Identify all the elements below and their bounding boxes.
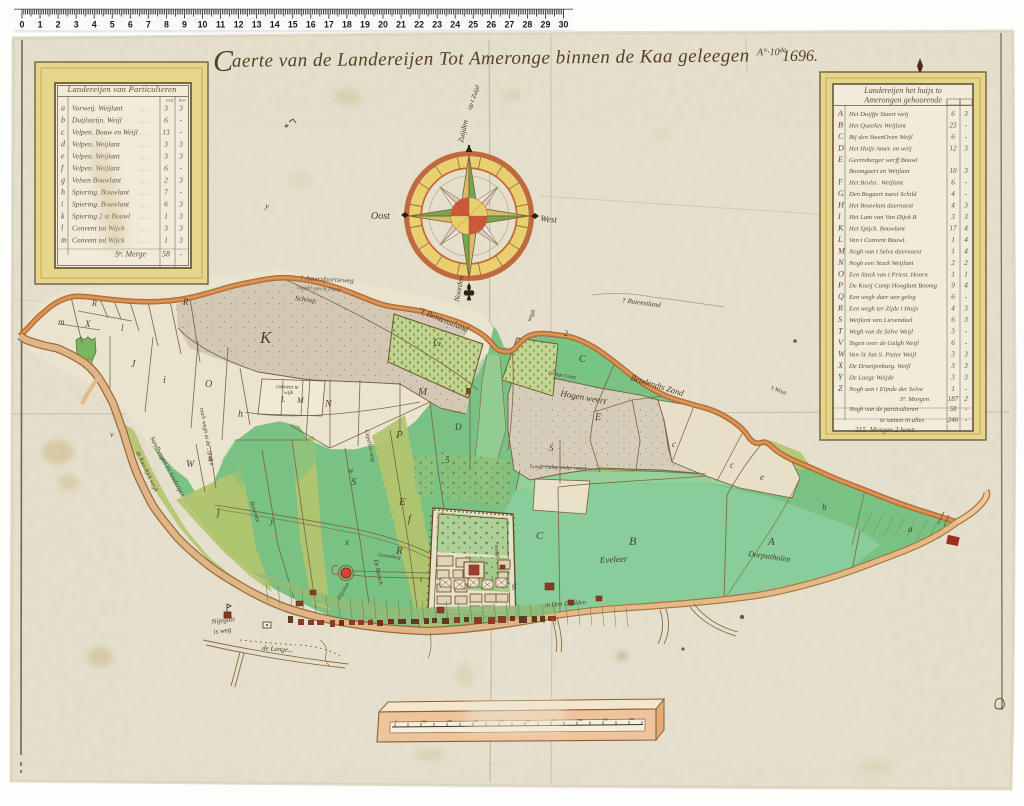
svg-text:e: e	[760, 472, 764, 482]
svg-text:800: 800	[603, 718, 609, 722]
svg-text:Vorweij. Weijlant: Vorweij. Weijlant	[72, 104, 124, 113]
svg-text:3: 3	[950, 350, 955, 358]
svg-text:29: 29	[541, 20, 551, 30]
svg-text:. . . .: . . . .	[140, 215, 151, 221]
svg-text:. . . .: . . . .	[140, 131, 151, 137]
svg-text:Weijlant van Lievendael: Weijlant van Lievendael	[849, 317, 913, 324]
svg-text:B: B	[629, 534, 637, 548]
svg-text:v: v	[110, 430, 114, 439]
svg-text:wijk: wijk	[284, 390, 294, 396]
svg-text:3: 3	[178, 200, 183, 209]
svg-text:c: c	[730, 460, 734, 470]
svg-text:X: X	[84, 319, 91, 329]
svg-text:Oost: Oost	[371, 211, 390, 222]
svg-text:2: 2	[56, 20, 61, 30]
svg-text:S: S	[549, 443, 554, 453]
svg-text:900: 900	[629, 717, 635, 721]
svg-text:19: 19	[360, 20, 370, 30]
svg-text:3: 3	[178, 236, 183, 245]
svg-text:4: 4	[92, 20, 97, 30]
svg-text:17: 17	[949, 225, 957, 233]
svg-text:Van t Convent Bouwl.: Van t Convent Bouwl.	[849, 237, 906, 244]
svg-text:6: 6	[951, 339, 955, 347]
svg-text:m: m	[58, 317, 65, 327]
svg-text:5: 5	[445, 455, 450, 465]
svg-text:Nogh van de particulieren: Nogh van de particulieren	[848, 406, 919, 413]
svg-text:Het Duijfje Staert weij: Het Duijfje Staert weij	[848, 111, 909, 118]
svg-text:N: N	[837, 258, 844, 267]
svg-text:h: h	[61, 188, 65, 197]
svg-text:. . . .: . . . .	[140, 191, 151, 197]
svg-text:187: 187	[948, 395, 959, 403]
svg-text:246: 246	[948, 416, 959, 424]
svg-text:0: 0	[20, 20, 25, 30]
svg-text:3: 3	[163, 224, 168, 233]
svg-text:K: K	[259, 328, 273, 347]
svg-text:C: C	[838, 132, 844, 141]
svg-text:H: H	[837, 201, 845, 210]
svg-text:Velpen. Bouw en Weijl: Velpen. Bouw en Weijl	[72, 128, 138, 137]
svg-text:12: 12	[949, 144, 957, 152]
svg-text:11: 11	[216, 20, 225, 30]
svg-text:3: 3	[950, 362, 955, 370]
svg-text:6: 6	[951, 316, 955, 324]
svg-text:3: 3	[963, 373, 968, 381]
svg-text:g: g	[512, 580, 517, 590]
svg-text:10: 10	[949, 167, 957, 175]
svg-text:weij: weij	[166, 98, 174, 103]
svg-text:Sª. Morgen: Sª. Morgen	[900, 396, 930, 403]
svg-text:4: 4	[964, 282, 968, 290]
svg-text:Het Lant van Van Dijck B: Het Lant van Van Dijck B	[848, 214, 917, 221]
svg-text:2: 2	[951, 259, 955, 267]
svg-text:4: 4	[964, 236, 968, 244]
svg-text:7: 7	[164, 188, 168, 197]
svg-text:O: O	[205, 379, 212, 390]
svg-text:3: 3	[963, 202, 968, 210]
svg-text:3: 3	[163, 140, 168, 149]
svg-text:P: P	[395, 429, 403, 441]
svg-text:E: E	[837, 155, 843, 164]
svg-text:5: 5	[110, 20, 115, 30]
svg-text:1: 1	[951, 270, 955, 278]
svg-text:D: D	[454, 422, 462, 432]
svg-text:6: 6	[164, 200, 168, 209]
svg-text:Amerongen gehoorende: Amerongen gehoorende	[863, 96, 942, 105]
svg-text:3: 3	[950, 213, 955, 221]
svg-text:E: E	[398, 496, 406, 508]
svg-text:Den Bogaert naest Schild: Den Bogaert naest Schild	[848, 191, 917, 198]
svg-text:3: 3	[74, 20, 79, 30]
svg-text:3: 3	[950, 373, 955, 381]
svg-text:27: 27	[504, 20, 514, 30]
svg-text:Nogh een Stuck Weijlant: Nogh een Stuck Weijlant	[848, 260, 914, 267]
svg-text:200: 200	[447, 719, 453, 723]
svg-text:10: 10	[198, 20, 208, 30]
svg-text:Bij den SteenOven Weijl: Bij den SteenOven Weijl	[849, 134, 913, 141]
svg-text:3: 3	[178, 176, 183, 185]
svg-text:G: G	[838, 189, 844, 198]
svg-text:. . . .: . . . .	[140, 239, 151, 245]
svg-text:G: G	[433, 335, 442, 349]
svg-text:E: E	[594, 412, 601, 423]
svg-text:21: 21	[396, 20, 406, 30]
svg-text:Nogh van t Selve daernaest: Nogh van t Selve daernaest	[848, 248, 921, 255]
svg-text:. . . .: . . . .	[140, 227, 151, 233]
svg-text:Landereijen van Particulieren: Landereijen van Particulieren	[66, 84, 176, 94]
svg-text:215. Morgen 2 hont:: 215. Morgen 2 hont:	[855, 425, 916, 434]
svg-text:K: K	[837, 224, 844, 233]
svg-text:3: 3	[963, 167, 968, 175]
svg-text:. . . .: . . . .	[140, 155, 151, 161]
svg-text:te samen in alles: te samen in alles	[880, 417, 925, 424]
svg-text:30: 30	[559, 20, 569, 30]
svg-text:2: 2	[164, 176, 168, 185]
svg-text:m: m	[61, 236, 67, 245]
svg-text:O: O	[838, 269, 844, 278]
svg-text:i: i	[61, 200, 63, 209]
svg-text:. . . .: . . . .	[140, 143, 151, 149]
svg-text:3: 3	[963, 213, 968, 221]
svg-text:De Draeijenburg. Weijl: De Draeijenburg. Weijl	[848, 363, 911, 370]
svg-text:Het Queekes Weijlant: Het Queekes Weijlant	[848, 123, 906, 130]
svg-text:a: a	[61, 104, 65, 113]
svg-text:700: 700	[577, 718, 583, 722]
svg-text:6: 6	[951, 293, 955, 301]
svg-text:3: 3	[963, 316, 968, 324]
svg-text:A: A	[767, 536, 775, 548]
svg-text:25: 25	[468, 20, 478, 30]
svg-text:6: 6	[951, 110, 955, 118]
svg-text:2: 2	[564, 329, 568, 338]
svg-text:3: 3	[163, 104, 168, 113]
svg-text:4: 4	[951, 305, 955, 313]
svg-text:k: k	[61, 212, 65, 221]
svg-text:3: 3	[178, 152, 183, 161]
svg-text:Nogh aen t Eijnde der Selve: Nogh aen t Eijnde der Selve	[848, 386, 923, 393]
svg-text:7: 7	[146, 20, 151, 30]
svg-text:58: 58	[950, 405, 958, 413]
svg-text:3: 3	[178, 212, 183, 221]
svg-text:D: D	[837, 143, 844, 152]
svg-text:1: 1	[951, 247, 955, 255]
svg-text:3: 3	[963, 350, 968, 358]
svg-text:De Koeij Camp Hooglant Boomg: De Koeij Camp Hooglant Boomg	[848, 283, 938, 290]
svg-text:A: A	[837, 109, 844, 118]
svg-text:F: F	[837, 178, 844, 187]
svg-text:C: C	[536, 530, 544, 542]
svg-text:13: 13	[162, 128, 170, 137]
svg-text:6: 6	[951, 179, 955, 187]
svg-text:Wegh van de Selve Weijl: Wegh van de Selve Weijl	[849, 329, 913, 336]
svg-text:26: 26	[486, 20, 496, 30]
svg-text:Een Stuck van t Priest. Hoorn: Een Stuck van t Priest. Hoorn	[848, 271, 928, 278]
svg-text:14: 14	[270, 20, 280, 30]
svg-text:L: L	[280, 395, 286, 404]
svg-text:1: 1	[164, 236, 168, 245]
svg-text:Geertsberger werff Bouwl: Geertsberger werff Bouwl	[849, 157, 918, 164]
svg-text:20: 20	[378, 20, 388, 30]
svg-text:Z: Z	[838, 384, 843, 393]
svg-text:M: M	[296, 396, 305, 405]
svg-text:i: i	[163, 375, 166, 386]
svg-text:2: 2	[964, 259, 968, 267]
svg-text:4: 4	[951, 202, 955, 210]
svg-text:g: g	[61, 176, 65, 185]
svg-text:3: 3	[963, 362, 968, 370]
svg-text:Het Brulst . Weijlant: Het Brulst . Weijlant	[848, 180, 903, 187]
svg-text:. . . .: . . . .	[140, 107, 151, 113]
svg-text:Duijlsteijn. Weijl: Duijlsteijn. Weijl	[71, 116, 122, 125]
svg-text:15: 15	[288, 20, 298, 30]
svg-text:P: P	[837, 281, 843, 290]
svg-text:Landereijen het huijs to: Landereijen het huijs to	[863, 86, 942, 95]
svg-text:R: R	[837, 304, 843, 313]
svg-text:B: B	[838, 121, 843, 130]
svg-text:M: M	[417, 386, 428, 398]
svg-text:c: c	[61, 128, 65, 137]
svg-text:1: 1	[38, 20, 43, 30]
svg-text:3: 3	[178, 140, 183, 149]
svg-text:R: R	[91, 299, 97, 308]
svg-text:Tegen over de Galgh Weijl: Tegen over de Galgh Weijl	[849, 340, 919, 347]
svg-text:hon: hon	[179, 98, 187, 103]
svg-text:Eveleer: Eveleer	[599, 554, 628, 566]
svg-text:22: 22	[414, 20, 424, 30]
svg-text:Q: Q	[838, 292, 844, 301]
svg-text:4: 4	[951, 190, 955, 198]
svg-text:1: 1	[951, 236, 955, 244]
svg-text:N: N	[324, 399, 333, 410]
svg-text:b: b	[61, 116, 65, 125]
svg-text:23: 23	[432, 20, 442, 30]
svg-text:3: 3	[178, 104, 183, 113]
svg-text:. . . .: . . . .	[140, 179, 151, 185]
svg-text:x: x	[344, 537, 349, 547]
svg-text:Een wegh ter Zijde t Huijs: Een wegh ter Zijde t Huijs	[848, 306, 919, 313]
svg-text:S: S	[351, 476, 357, 488]
svg-text:J: J	[131, 359, 136, 370]
svg-text:C: C	[213, 45, 234, 78]
svg-text:6: 6	[128, 20, 133, 30]
svg-text:16: 16	[306, 20, 316, 30]
svg-text:3: 3	[178, 224, 183, 233]
svg-text:b: b	[822, 502, 827, 512]
svg-text:0: 0	[395, 720, 397, 724]
svg-text:12: 12	[234, 20, 244, 30]
svg-text:West: West	[540, 213, 558, 225]
svg-text:3: 3	[963, 144, 968, 152]
svg-text:Sⁿ. Merge: Sⁿ. Merge	[115, 250, 147, 259]
svg-text:4: 4	[964, 247, 968, 255]
svg-text:13: 13	[252, 20, 262, 30]
svg-text:28: 28	[523, 20, 533, 30]
svg-text:y: y	[269, 516, 274, 526]
svg-text:8: 8	[164, 20, 169, 30]
svg-text:23: 23	[949, 122, 957, 130]
svg-text:6: 6	[164, 164, 168, 173]
svg-text:4: 4	[964, 225, 968, 233]
svg-text:3: 3	[963, 110, 968, 118]
svg-text:Het Bouwlant daernaest: Het Bouwlant daernaest	[848, 203, 913, 210]
svg-text:. . . .: . . . .	[140, 203, 151, 209]
svg-text:1696.: 1696.	[782, 48, 818, 65]
svg-text:De Laege Weijde: De Laege Weijde	[848, 374, 894, 381]
svg-text:1: 1	[964, 270, 968, 278]
svg-text:C: C	[579, 354, 586, 365]
svg-text:6: 6	[951, 133, 955, 141]
svg-text:3: 3	[163, 152, 168, 161]
svg-text:R: R	[182, 297, 189, 307]
svg-text:Het Spijck. Bouwlant: Het Spijck. Bouwlant	[848, 226, 905, 233]
svg-text:Een wegh daer aen geleg: Een wegh daer aen geleg	[848, 294, 916, 301]
svg-text:2: 2	[964, 395, 968, 403]
svg-text:24: 24	[450, 20, 460, 30]
svg-text:c: c	[672, 439, 676, 449]
svg-text:6: 6	[164, 116, 168, 125]
svg-text:9: 9	[951, 282, 955, 290]
svg-text:Van St Jan S. Pieter Weijl: Van St Jan S. Pieter Weijl	[849, 351, 916, 358]
svg-text:a: a	[908, 524, 913, 534]
svg-text:1: 1	[951, 385, 955, 393]
svg-text:1: 1	[164, 212, 168, 221]
svg-text:. . . .: . . . .	[140, 167, 151, 173]
svg-text:steegh: steegh	[493, 545, 500, 560]
svg-text:3: 3	[963, 305, 968, 313]
svg-text:17: 17	[324, 20, 334, 30]
svg-text:e: e	[61, 152, 65, 161]
svg-text:Het Huijs Amer. en weij: Het Huijs Amer. en weij	[848, 145, 912, 152]
svg-text:X: X	[837, 361, 844, 370]
svg-text:M: M	[837, 246, 846, 255]
svg-text:h: h	[238, 409, 243, 420]
svg-text:L: L	[837, 235, 843, 244]
svg-text:58: 58	[162, 250, 170, 259]
svg-text:. . . .: . . . .	[140, 119, 151, 125]
svg-text:w: w	[348, 466, 354, 475]
svg-text:3: 3	[950, 328, 955, 336]
svg-text:∗: ∗	[283, 122, 289, 130]
svg-text:S: S	[838, 315, 842, 324]
svg-text:18: 18	[342, 20, 352, 30]
svg-text:100: 100	[421, 719, 427, 723]
svg-text:9: 9	[182, 20, 187, 30]
svg-text:Boomgaert en Weijlant: Boomgaert en Weijlant	[849, 168, 910, 175]
